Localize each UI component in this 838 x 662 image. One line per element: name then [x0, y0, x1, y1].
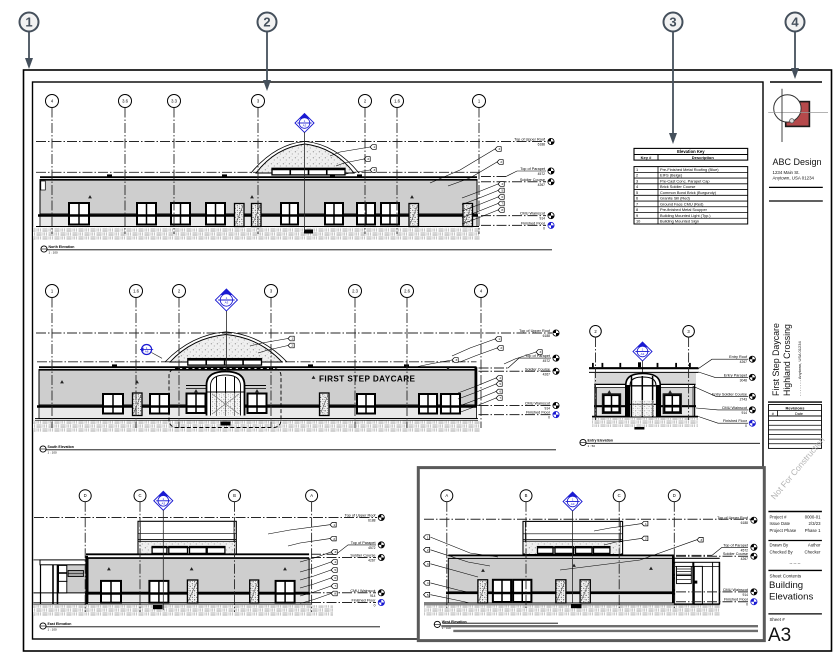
- svg-text:0000-01: 0000-01: [805, 515, 821, 520]
- svg-text:0: 0: [548, 416, 550, 420]
- svg-text:0: 0: [543, 226, 545, 230]
- svg-text:Entry Soldier Course: Entry Soldier Course: [712, 392, 747, 396]
- svg-text:1: 1: [498, 337, 500, 341]
- svg-text:7: 7: [334, 584, 336, 588]
- svg-text:1.6: 1.6: [133, 289, 139, 294]
- svg-text:3: 3: [373, 168, 375, 172]
- svg-text:2: 2: [263, 15, 270, 30]
- svg-text:A: A: [310, 493, 313, 498]
- svg-text:Soldier Course: Soldier Course: [525, 367, 550, 371]
- svg-text:First Step Daycare: First Step Daycare: [771, 323, 781, 396]
- svg-text:4267: 4267: [740, 360, 748, 364]
- svg-text:Issue Date: Issue Date: [770, 521, 791, 526]
- svg-text:7: 7: [636, 201, 638, 206]
- svg-text:C: C: [618, 493, 621, 498]
- svg-text:1: 1: [645, 522, 647, 526]
- svg-text:2.3: 2.3: [352, 289, 358, 294]
- svg-text:South Elevation: South Elevation: [48, 445, 74, 449]
- svg-text:4572: 4572: [543, 359, 551, 363]
- svg-text:Building Mounted Sign: Building Mounted Sign: [660, 219, 699, 224]
- svg-text:Key #: Key #: [641, 155, 652, 160]
- svg-text:Entry Elevation: Entry Elevation: [588, 438, 613, 442]
- svg-text:2: 2: [367, 157, 369, 161]
- svg-text:Anytown, USA 01234: Anytown, USA 01234: [773, 176, 815, 181]
- svg-text:0: 0: [745, 424, 747, 428]
- svg-text:Entry Parapet: Entry Parapet: [724, 373, 748, 377]
- svg-text:CMU Wainscot: CMU Wainscot: [350, 589, 376, 593]
- svg-text:1: 1: [427, 535, 429, 539]
- svg-text:0: 0: [746, 603, 748, 607]
- svg-text:1.6: 1.6: [394, 99, 400, 104]
- svg-text:2: 2: [291, 344, 293, 348]
- svg-text:CMU Wainscot: CMU Wainscot: [525, 402, 551, 406]
- svg-text:4: 4: [427, 581, 429, 585]
- svg-text:Checked By: Checked By: [770, 550, 794, 555]
- svg-text:4267: 4267: [368, 559, 376, 563]
- svg-text:EIFS (Beige): EIFS (Beige): [660, 173, 683, 178]
- svg-text:Brick Soldier Course: Brick Soldier Course: [660, 184, 695, 189]
- svg-text:6: 6: [501, 195, 503, 199]
- svg-text:Soldier Course: Soldier Course: [520, 178, 545, 182]
- svg-text:Top of Upper Roof: Top of Upper Roof: [345, 514, 377, 518]
- svg-text:Elevation Key: Elevation Key: [677, 149, 705, 154]
- svg-text:Finished Floor: Finished Floor: [521, 221, 546, 225]
- svg-text:Project Phase: Project Phase: [770, 528, 797, 533]
- svg-text:Soldier Course: Soldier Course: [350, 554, 375, 558]
- svg-text:Granite Sill (Red): Granite Sill (Red): [660, 196, 691, 201]
- svg-text:5: 5: [334, 568, 336, 572]
- svg-text:4: 4: [501, 182, 503, 186]
- svg-text:Entry Roof: Entry Roof: [729, 355, 748, 359]
- svg-text:A3: A3: [303, 124, 307, 128]
- svg-text:5: 5: [636, 190, 638, 195]
- svg-text:6: 6: [636, 196, 638, 201]
- svg-text:Finished Floor: Finished Floor: [724, 598, 749, 602]
- svg-text:-- -- --: -- -- --: [790, 561, 802, 566]
- svg-text:4267: 4267: [538, 183, 546, 187]
- svg-text:6: 6: [334, 576, 336, 580]
- svg-text:4: 4: [334, 560, 336, 564]
- svg-text:2: 2: [427, 548, 429, 552]
- svg-text:East Elevation: East Elevation: [48, 622, 72, 626]
- svg-text:7: 7: [499, 396, 501, 400]
- svg-text:914: 914: [370, 594, 376, 598]
- svg-text:1234 Main St.: 1234 Main St.: [773, 170, 800, 175]
- svg-text:1 : 100: 1 : 100: [48, 451, 58, 455]
- svg-text:914: 914: [741, 411, 747, 415]
- svg-text:1 : 100: 1 : 100: [49, 251, 59, 255]
- svg-text:Author: Author: [808, 543, 821, 548]
- svg-text:Top of Upper Roof: Top of Upper Roof: [717, 516, 749, 520]
- svg-text:Highland Crossing: Highland Crossing: [782, 324, 792, 396]
- svg-text:5: 5: [501, 189, 503, 193]
- svg-text:4: 4: [499, 376, 501, 380]
- svg-text:Top of Upper Roof: Top of Upper Roof: [519, 329, 551, 333]
- svg-text:5: 5: [499, 382, 501, 386]
- svg-text:Pre-Cast Conc. Parapet Cap: Pre-Cast Conc. Parapet Cap: [660, 178, 710, 183]
- svg-text:4572: 4572: [538, 172, 546, 176]
- svg-text:3: 3: [539, 350, 541, 354]
- svg-text:2: 2: [500, 346, 502, 350]
- svg-text:3048: 3048: [740, 378, 748, 382]
- svg-text:- - - - - - - Anytown, USA 012: - - - - - - - Anytown, USA 01234: [797, 341, 802, 396]
- svg-text:2.6: 2.6: [404, 289, 410, 294]
- svg-text:Description: Description: [692, 155, 715, 160]
- svg-text:Top of Parapet: Top of Parapet: [723, 543, 749, 547]
- svg-text:B: B: [233, 493, 236, 498]
- svg-text:3: 3: [669, 15, 676, 30]
- svg-text:1: 1: [636, 167, 638, 172]
- svg-text:Drawn By: Drawn By: [770, 543, 789, 548]
- svg-text:A3: A3: [641, 352, 645, 356]
- svg-text:1: 1: [25, 15, 32, 30]
- svg-text:3.3: 3.3: [171, 99, 177, 104]
- svg-text:1 : 100: 1 : 100: [48, 628, 58, 632]
- svg-text:3: 3: [427, 562, 429, 566]
- svg-text:Phase 1: Phase 1: [805, 528, 821, 533]
- svg-text:6188: 6188: [543, 334, 551, 338]
- svg-text:West Elevation: West Elevation: [442, 620, 467, 624]
- svg-text:1: 1: [291, 337, 293, 341]
- svg-text:A: A: [445, 493, 448, 498]
- svg-text:8: 8: [334, 592, 336, 596]
- svg-text:6188: 6188: [538, 143, 546, 147]
- svg-text:A3: A3: [225, 301, 229, 305]
- svg-text:Pre-finished Metal Scupper: Pre-finished Metal Scupper: [660, 207, 708, 212]
- svg-text:4267: 4267: [741, 557, 749, 561]
- svg-text:D: D: [84, 493, 87, 498]
- svg-text:Ground Face CMU (Red): Ground Face CMU (Red): [660, 201, 704, 206]
- svg-text:3: 3: [636, 178, 638, 183]
- svg-text:Project #: Project #: [770, 515, 788, 520]
- svg-text:3: 3: [455, 358, 457, 362]
- svg-text:914: 914: [742, 593, 748, 597]
- svg-text:2743: 2743: [740, 397, 748, 401]
- svg-text:3.6: 3.6: [122, 99, 128, 104]
- svg-text:3: 3: [700, 538, 702, 542]
- svg-text:Date: Date: [795, 412, 803, 416]
- svg-text:Finished Floor: Finished Floor: [526, 411, 551, 415]
- svg-text:6: 6: [499, 390, 501, 394]
- svg-text:6188: 6188: [368, 519, 376, 523]
- svg-text:Soldier Course: Soldier Course: [723, 552, 748, 556]
- svg-text:6188: 6188: [741, 521, 749, 525]
- svg-text:CMU Wainscot: CMU Wainscot: [722, 406, 748, 410]
- svg-text:A3: A3: [161, 501, 165, 505]
- svg-text:2: 2: [500, 160, 502, 164]
- svg-text:Sheet Contents: Sheet Contents: [770, 574, 802, 579]
- svg-text:4572: 4572: [368, 546, 376, 550]
- svg-text:Top of Upper Roof: Top of Upper Roof: [514, 138, 546, 142]
- svg-text:1: 1: [373, 145, 375, 149]
- svg-text:Building Mounted Light (Typ.): Building Mounted Light (Typ.): [660, 213, 711, 218]
- svg-text:A8: A8: [145, 350, 149, 354]
- svg-text:2: 2: [333, 537, 335, 541]
- svg-text:1 : 50: 1 : 50: [588, 444, 596, 448]
- svg-text:Sheet #: Sheet #: [770, 617, 786, 622]
- svg-text:CMU Wainscot: CMU Wainscot: [723, 588, 749, 592]
- svg-text:Revisions: Revisions: [786, 406, 806, 411]
- svg-text:C: C: [138, 493, 141, 498]
- svg-text:Elevations: Elevations: [769, 592, 813, 603]
- svg-text:North Elevation: North Elevation: [49, 245, 75, 249]
- svg-text:4: 4: [791, 15, 799, 30]
- svg-text:Top of Parapet: Top of Parapet: [525, 354, 551, 358]
- svg-text:3: 3: [334, 550, 336, 554]
- svg-text:1: 1: [333, 523, 335, 527]
- svg-text:9: 9: [636, 213, 638, 218]
- svg-text:4267: 4267: [543, 372, 551, 376]
- svg-text:CMU Wainscot: CMU Wainscot: [520, 212, 546, 216]
- svg-text:2/3/23: 2/3/23: [809, 521, 822, 526]
- svg-text:2: 2: [636, 173, 638, 178]
- svg-text:Finished Floor: Finished Floor: [351, 599, 376, 603]
- svg-text:FIRST STEP DAYCARE: FIRST STEP DAYCARE: [319, 375, 416, 384]
- svg-text:D: D: [673, 493, 676, 498]
- svg-text:5: 5: [427, 593, 429, 597]
- svg-text:8: 8: [501, 208, 503, 212]
- svg-text:Top of Parapet: Top of Parapet: [520, 167, 546, 171]
- svg-text:0: 0: [374, 604, 376, 608]
- svg-text:Finished Floor: Finished Floor: [723, 419, 748, 423]
- svg-text:Common Bond Brick (Burgundy): Common Bond Brick (Burgundy): [660, 190, 717, 195]
- svg-text:7: 7: [501, 202, 503, 206]
- svg-text:A3: A3: [768, 625, 791, 646]
- svg-text:Checker: Checker: [804, 550, 821, 555]
- svg-text:Pre-Finished Metal Roofing (Bl: Pre-Finished Metal Roofing (Blue): [660, 167, 719, 172]
- svg-text:A3: A3: [571, 502, 575, 506]
- svg-text:Building: Building: [769, 580, 803, 591]
- svg-text:ABC Design: ABC Design: [773, 157, 822, 167]
- svg-text:914: 914: [539, 217, 545, 221]
- svg-text:Top of Parapet: Top of Parapet: [351, 541, 377, 545]
- svg-text:3: 3: [498, 147, 500, 151]
- svg-text:8: 8: [636, 207, 638, 212]
- svg-text:2: 2: [645, 537, 647, 541]
- svg-text:B: B: [525, 493, 528, 498]
